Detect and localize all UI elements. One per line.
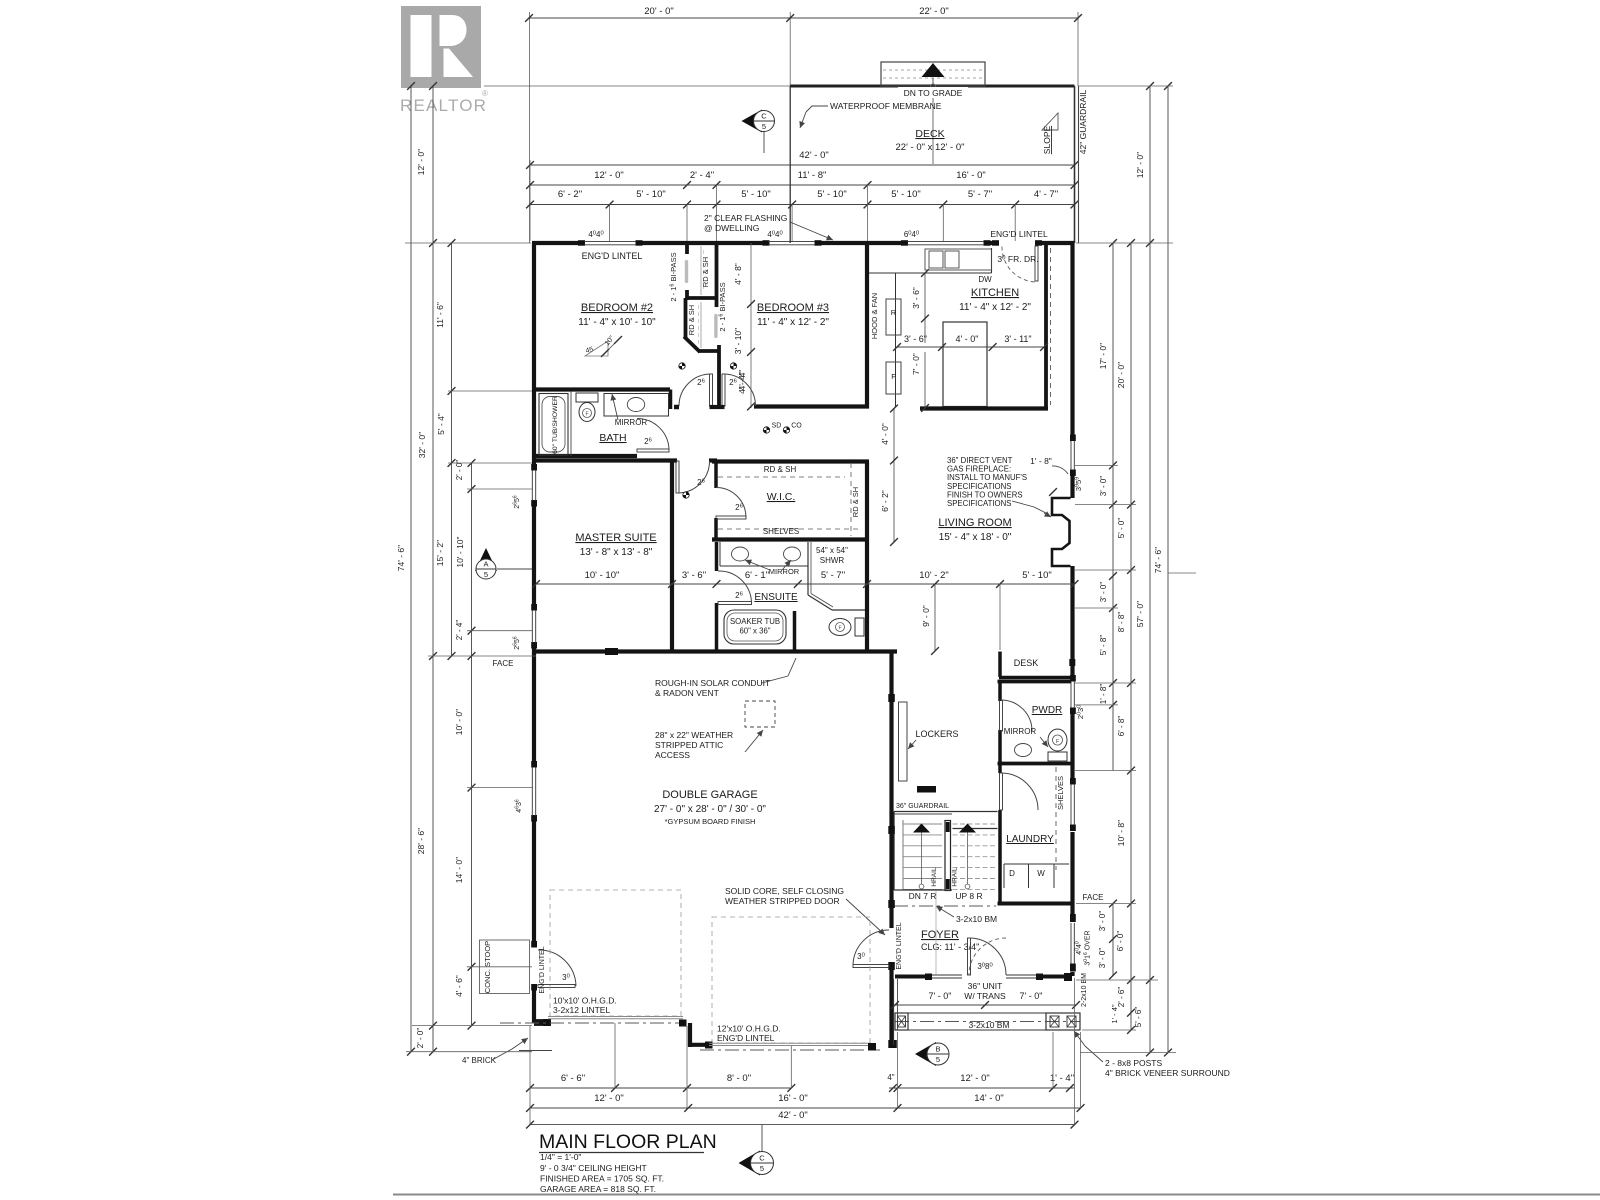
svg-text:SPECIFICATIONS: SPECIFICATIONS [947,499,1011,508]
svg-text:HRAIL: HRAIL [931,867,938,887]
svg-text:54" x 54": 54" x 54" [816,546,848,555]
svg-text:22' - 0": 22' - 0" [919,6,948,17]
svg-text:F: F [585,412,588,418]
svg-text:SHELVES: SHELVES [1056,776,1065,810]
svg-text:12' - 0": 12' - 0" [416,149,426,175]
svg-text:& RADON VENT: & RADON VENT [655,688,719,698]
svg-text:4' - 6": 4' - 6" [454,975,464,997]
svg-text:PWDR: PWDR [1032,705,1063,716]
svg-text:20' - 0": 20' - 0" [1116,362,1126,388]
svg-text:3' - 6": 3' - 6" [911,287,921,309]
svg-text:12' - 0": 12' - 0" [594,1093,623,1104]
svg-text:SHELVES: SHELVES [763,527,799,536]
svg-text:CO: CO [791,423,802,430]
svg-text:R: R [891,308,897,317]
svg-text:SHWR: SHWR [820,556,845,565]
svg-text:16' - 0": 16' - 0" [956,170,985,181]
svg-text:42' - 0": 42' - 0" [799,150,828,161]
svg-text:ENSUITE: ENSUITE [754,592,798,603]
svg-text:2 - 16 BI-PASS: 2 - 16 BI-PASS [669,252,678,301]
svg-text:DOUBLE GARAGE: DOUBLE GARAGE [662,789,757,801]
svg-text:4' - 4": 4' - 4" [738,370,747,391]
svg-text:4' - 8": 4' - 8" [733,263,743,285]
svg-text:4" BRICK VENEER SURROUND: 4" BRICK VENEER SURROUND [1105,1068,1230,1078]
svg-text:7' - 0": 7' - 0" [929,991,952,1001]
svg-text:ENG'D LINTEL: ENG'D LINTEL [582,251,643,261]
svg-text:3-2x12 LINTEL: 3-2x12 LINTEL [553,1005,610,1015]
svg-text:22' - 0" x 12' - 0": 22' - 0" x 12' - 0" [896,142,965,153]
svg-text:11' - 6": 11' - 6" [435,302,445,328]
svg-text:DN 7 R: DN 7 R [909,891,937,901]
svg-text:5' - 10": 5' - 10" [817,189,846,200]
svg-text:57' - 0": 57' - 0" [1135,601,1145,627]
svg-text:3' - 6": 3' - 6" [682,570,706,581]
svg-text:*GYPSUM BOARD FINISH: *GYPSUM BOARD FINISH [665,817,756,826]
svg-text:2' - 4": 2' - 4" [455,620,464,641]
svg-text:LIVING ROOM: LIVING ROOM [938,517,1011,529]
svg-text:2 - 8x8 POSTS: 2 - 8x8 POSTS [1105,1058,1162,1068]
svg-text:4' - 7": 4' - 7" [1034,189,1058,200]
svg-text:3' - 0": 3' - 0" [1098,948,1107,969]
svg-text:SLOPE: SLOPE [1042,126,1052,155]
svg-text:12' - 0": 12' - 0" [594,170,623,181]
svg-text:SOLID CORE, SELF CLOSING: SOLID CORE, SELF CLOSING [725,886,844,896]
svg-text:ENG'D LINTEL: ENG'D LINTEL [896,922,903,969]
svg-text:6' - 2": 6' - 2" [558,189,582,200]
svg-text:9' - 0": 9' - 0" [921,605,931,627]
svg-text:5' - 10": 5' - 10" [1022,570,1051,581]
svg-text:BEDROOM #3: BEDROOM #3 [757,302,829,314]
svg-text:MIRROR: MIRROR [1004,727,1037,736]
svg-text:10' - 10": 10' - 10" [585,570,620,581]
svg-text:D: D [1009,869,1015,878]
svg-text:2" CLEAR FLASHING: 2" CLEAR FLASHING [704,213,787,223]
svg-text:ENG'D LINTEL: ENG'D LINTEL [990,229,1048,239]
svg-text:3-2x10 BM: 3-2x10 BM [956,914,997,924]
svg-text:HRAIL: HRAIL [952,867,959,887]
svg-text:FINISHED AREA = 1705 SQ. FT.: FINISHED AREA = 1705 SQ. FT. [540,1174,664,1184]
svg-text:F: F [891,372,896,381]
svg-text:36" GUARDRAIL: 36" GUARDRAIL [896,803,949,810]
svg-text:LOCKERS: LOCKERS [915,729,958,739]
svg-text:8' - 0": 8' - 0" [727,1073,751,1084]
svg-text:28" x 22" WEATHER: 28" x 22" WEATHER [655,730,733,740]
svg-text:5' - 10": 5' - 10" [891,189,920,200]
svg-text:14' - 0": 14' - 0" [974,1093,1003,1104]
svg-text:5: 5 [760,1164,764,1173]
svg-text:6' - 1": 6' - 1" [745,570,769,581]
svg-text:10'x10' O.H.G.D.: 10'x10' O.H.G.D. [553,996,617,1006]
svg-text:11' - 8": 11' - 8" [798,170,827,181]
svg-text:3' - 11": 3' - 11" [1004,334,1031,344]
svg-text:C: C [761,112,767,121]
svg-text:A: A [483,560,488,569]
svg-text:12' - 0": 12' - 0" [960,1073,989,1084]
svg-text:FACE: FACE [1083,893,1104,902]
svg-text:4": 4" [887,1073,894,1082]
svg-text:10' - 10": 10' - 10" [455,536,465,567]
svg-text:15' - 4" x 18' - 0": 15' - 4" x 18' - 0" [939,532,1012,543]
svg-text:2-2x10 BM: 2-2x10 BM [1081,973,1088,1007]
svg-text:3' - 0": 3' - 0" [1099,476,1108,497]
svg-text:2' - 4": 2' - 4" [690,170,714,181]
svg-text:ACCESS: ACCESS [655,750,690,760]
svg-text:SD: SD [772,423,782,430]
svg-text:4' - 0": 4' - 0" [956,334,979,344]
svg-text:5' - 10": 5' - 10" [741,189,770,200]
svg-text:W/ TRANS: W/ TRANS [964,991,1006,1001]
svg-text:6' - 8": 6' - 8" [1117,716,1126,737]
svg-text:5' - 7": 5' - 7" [968,189,992,200]
svg-text:1' - 4": 1' - 4" [1050,1073,1074,1084]
svg-text:42" GUARDRAIL: 42" GUARDRAIL [1078,90,1088,155]
svg-text:4" BRICK: 4" BRICK [462,1056,497,1065]
svg-text:5: 5 [484,570,488,579]
svg-text:4' - 0": 4' - 0" [880,423,890,445]
svg-text:6' - 0": 6' - 0" [1116,931,1125,952]
svg-text:11' - 4" x 12' - 2": 11' - 4" x 12' - 2" [959,302,1031,313]
svg-text:RD & SH: RD & SH [851,487,860,517]
svg-text:3' - 6": 3' - 6" [904,334,927,344]
svg-text:5' - 7": 5' - 7" [821,570,845,581]
svg-text:BEDROOM #2: BEDROOM #2 [581,302,653,314]
svg-text:W.I.C.: W.I.C. [767,491,796,503]
svg-text:14' - 0": 14' - 0" [454,857,464,883]
svg-text:MAIN FLOOR PLAN: MAIN FLOOR PLAN [539,1131,717,1153]
svg-text:42' - 0": 42' - 0" [778,1110,807,1121]
svg-text:KITCHEN: KITCHEN [971,287,1019,299]
svg-text:C: C [759,1154,765,1163]
svg-text:B: B [935,1045,940,1054]
svg-text:74' - 6": 74' - 6" [1153,547,1163,573]
svg-text:2 - 16 BI-PASS: 2 - 16 BI-PASS [718,282,727,331]
svg-text:DW: DW [978,275,992,284]
svg-text:10' - 8": 10' - 8" [1116,820,1126,846]
svg-text:12' - 0": 12' - 0" [1135,152,1145,178]
svg-text:20' - 0": 20' - 0" [644,6,673,17]
svg-text:®: ® [482,89,488,98]
svg-text:GARAGE AREA = 818 SQ. FT.: GARAGE AREA = 818 SQ. FT. [540,1184,656,1194]
svg-text:@ DWELLING: @ DWELLING [704,223,759,233]
svg-text:3-2x10 BM: 3-2x10 BM [968,1020,1009,1030]
svg-text:WEATHER STRIPPED DOOR: WEATHER STRIPPED DOOR [725,896,840,906]
svg-text:7' - 0": 7' - 0" [1020,991,1043,1001]
svg-text:HOOD & FAN: HOOD & FAN [870,293,879,339]
svg-text:STRIPPED ATTIC: STRIPPED ATTIC [655,740,723,750]
svg-text:17' - 0": 17' - 0" [1098,343,1108,369]
svg-text:11' - 4" x 10' - 10": 11' - 4" x 10' - 10" [578,317,656,328]
svg-text:60" x 36": 60" x 36" [739,627,770,636]
svg-text:BATH: BATH [599,432,626,444]
svg-text:UP 8 R: UP 8 R [955,891,982,901]
svg-text:5' - 4": 5' - 4" [436,413,446,435]
svg-text:FACE: FACE [493,659,514,668]
svg-text:10' - 2": 10' - 2" [919,570,948,581]
svg-text:28' - 6": 28' - 6" [416,828,426,854]
svg-text:9' - 0 3/4" CEILING HEIGHT: 9' - 0 3/4" CEILING HEIGHT [540,1163,647,1173]
svg-text:RD & SH: RD & SH [687,305,696,335]
svg-text:DECK: DECK [915,128,944,140]
svg-text:36" UNIT: 36" UNIT [968,981,1003,991]
svg-text:60" TUB/SHOWER: 60" TUB/SHOWER [552,396,559,454]
svg-text:DN TO GRADE: DN TO GRADE [904,88,963,98]
svg-text:DESK: DESK [1014,658,1039,668]
svg-text:ENG'D LINTEL: ENG'D LINTEL [539,946,546,993]
svg-text:1' - 8": 1' - 8" [1099,684,1108,705]
svg-text:6' - 6": 6' - 6" [561,1073,585,1084]
svg-text:74' - 6": 74' - 6" [396,545,406,571]
svg-text:ROUGH-IN SOLAR CONDUIT: ROUGH-IN SOLAR CONDUIT [655,678,770,688]
svg-text:W: W [1037,869,1045,878]
svg-text:SOAKER TUB: SOAKER TUB [730,617,780,626]
svg-text:8' - 8": 8' - 8" [1117,612,1126,633]
svg-text:5' - 8": 5' - 8" [1099,635,1108,656]
svg-text:LAUNDRY: LAUNDRY [1006,834,1054,845]
svg-text:FOYER: FOYER [921,929,959,941]
svg-text:2' - 0": 2' - 0" [416,1028,425,1049]
svg-text:3' - 0": 3' - 0" [1099,582,1108,603]
svg-text:5: 5 [936,1055,940,1064]
svg-text:ENG'D LINTEL: ENG'D LINTEL [717,1033,775,1043]
svg-text:1' - 8": 1' - 8" [1030,456,1052,466]
svg-text:RD & SH: RD & SH [701,257,710,287]
svg-text:32' - 0": 32' - 0" [417,432,427,458]
svg-text:5' - 6": 5' - 6" [1134,1007,1143,1028]
svg-text:27' - 0" x 28' - 0" / 30' - 0": 27' - 0" x 28' - 0" / 30' - 0" [654,804,766,815]
svg-text:12'x10' O.H.G.D.: 12'x10' O.H.G.D. [717,1024,781,1034]
svg-text:15' - 2": 15' - 2" [435,540,445,566]
svg-text:11' - 4" x 12' - 2": 11' - 4" x 12' - 2" [757,317,829,328]
svg-text:2' - 6": 2' - 6" [1117,987,1126,1008]
svg-text:5' - 0": 5' - 0" [1117,518,1126,539]
svg-text:5: 5 [762,122,766,131]
svg-text:MASTER SUITE: MASTER SUITE [575,532,656,544]
svg-text:10' - 0": 10' - 0" [454,709,464,735]
svg-text:1/4" = 1'-0": 1/4" = 1'-0" [540,1152,581,1162]
svg-text:1' - 4": 1' - 4" [1110,1004,1119,1023]
svg-text:WATERPROOF MEMBRANE: WATERPROOF MEMBRANE [830,101,942,111]
svg-text:RD & SH: RD & SH [764,465,797,474]
svg-text:F: F [838,626,841,632]
svg-text:3' - 10": 3' - 10" [733,328,743,354]
svg-text:13' - 8" x 13' - 8": 13' - 8" x 13' - 8" [580,547,653,558]
svg-text:MIRROR: MIRROR [769,567,800,576]
svg-text:3' - 0": 3' - 0" [1098,911,1107,932]
svg-text:REALTOR: REALTOR [400,96,487,115]
svg-text:16' - 0": 16' - 0" [778,1093,807,1104]
svg-text:7' - 0": 7' - 0" [911,353,921,375]
svg-text:5' - 10": 5' - 10" [636,189,665,200]
svg-text:6' - 2": 6' - 2" [880,490,890,512]
